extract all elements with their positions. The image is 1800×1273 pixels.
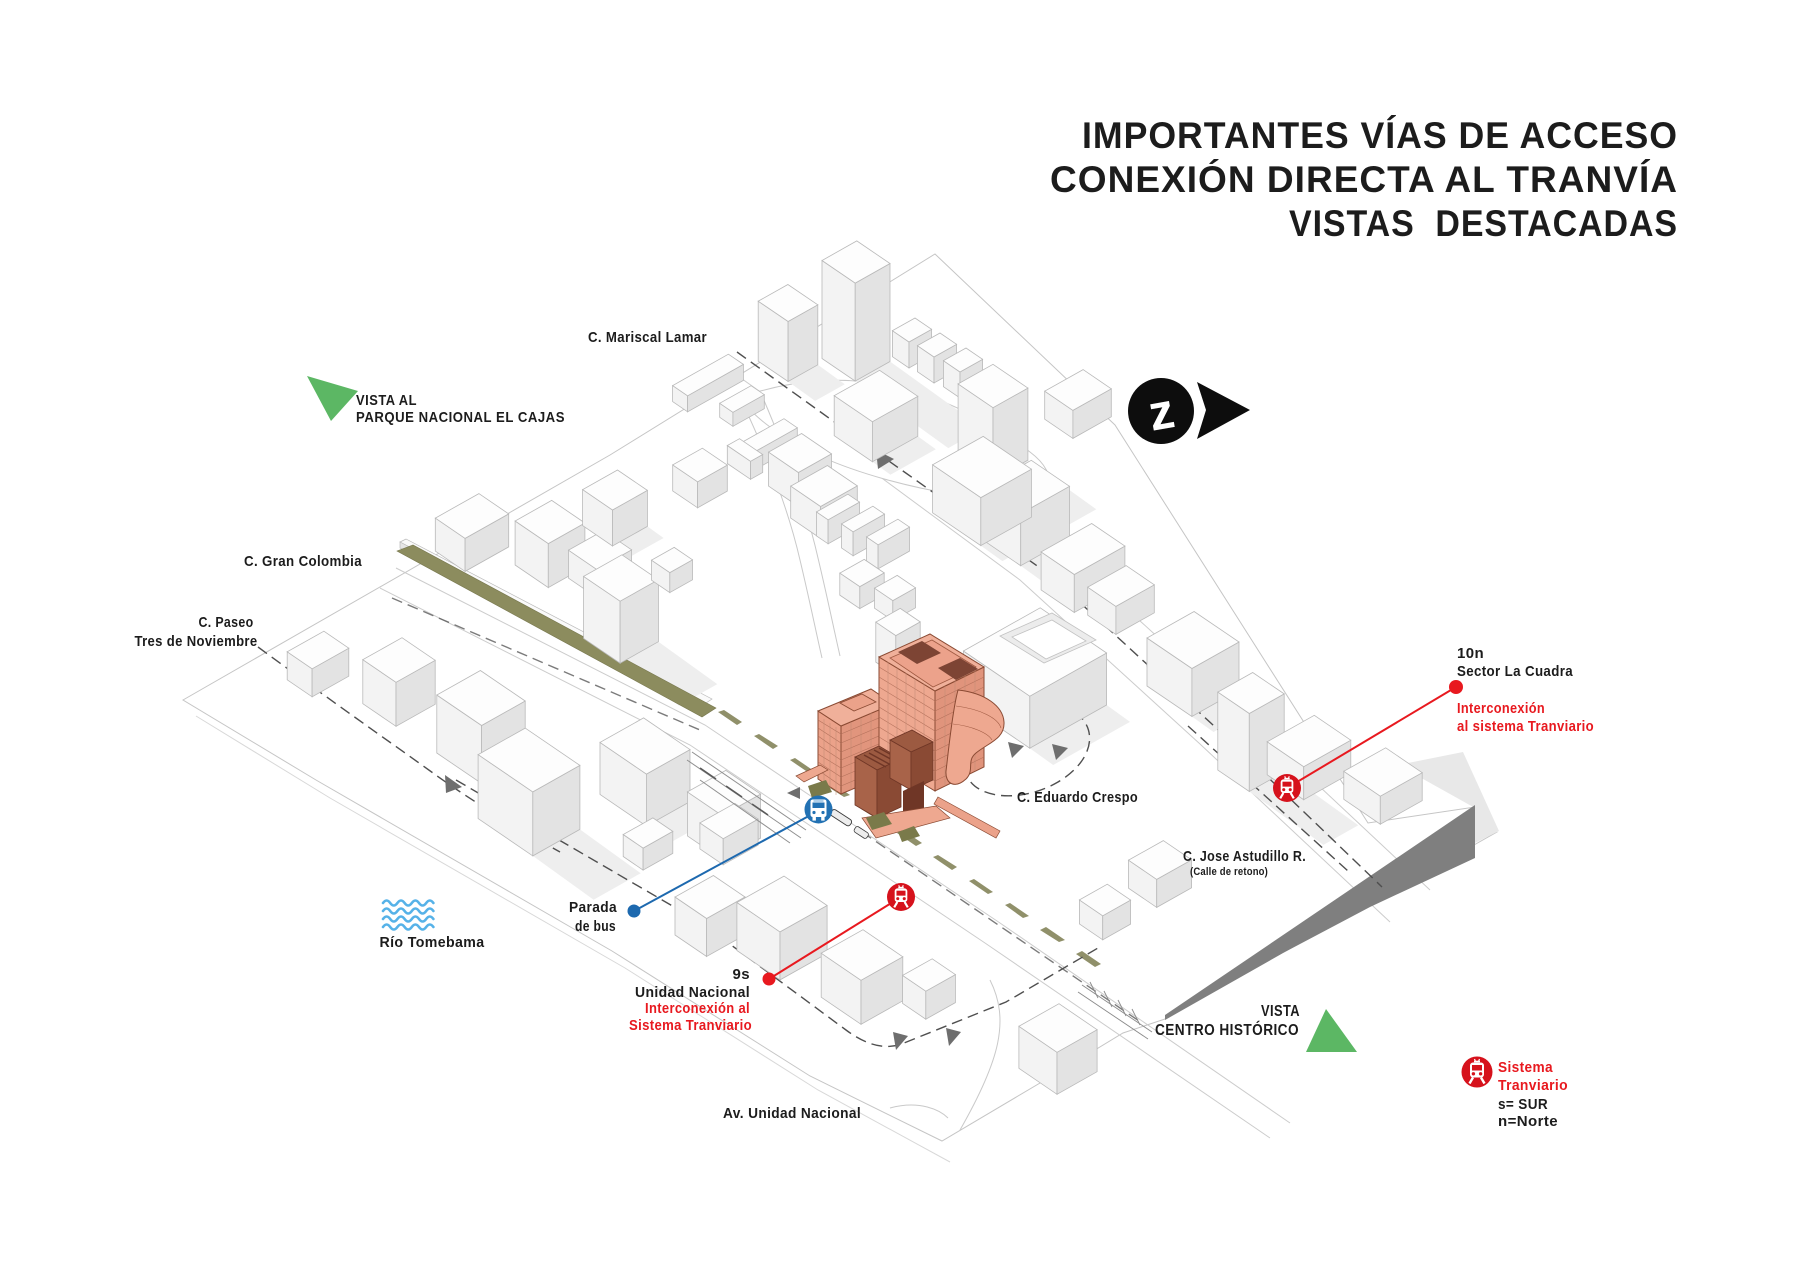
svg-text:VISTA: VISTA	[1261, 1003, 1300, 1020]
svg-text:Interconexión: Interconexión	[1457, 700, 1545, 717]
svg-text:C. Jose Astudillo R.: C. Jose Astudillo R.	[1183, 848, 1306, 865]
svg-text:10n: 10n	[1457, 645, 1484, 662]
svg-text:9s: 9s	[733, 966, 751, 983]
svg-text:Sector La Cuadra: Sector La Cuadra	[1457, 663, 1573, 680]
svg-text:(Calle de retono): (Calle de retono)	[1190, 866, 1268, 878]
svg-text:Av. Unidad Nacional: Av. Unidad Nacional	[723, 1105, 861, 1122]
svg-text:Río Tomebama: Río Tomebama	[380, 934, 485, 951]
svg-text:CENTRO HISTÓRICO: CENTRO HISTÓRICO	[1155, 1020, 1299, 1039]
svg-text:PARQUE NACIONAL EL CAJAS: PARQUE NACIONAL EL CAJAS	[356, 409, 565, 426]
svg-text:s= SUR: s= SUR	[1498, 1096, 1548, 1113]
svg-text:Tranviario: Tranviario	[1498, 1077, 1568, 1094]
svg-text:Parada: Parada	[569, 899, 617, 916]
svg-text:IMPORTANTES VÍAS DE ACCESO: IMPORTANTES VÍAS DE ACCESO	[1082, 115, 1678, 156]
svg-text:Unidad Nacional: Unidad Nacional	[635, 984, 750, 1001]
svg-text:n=Norte: n=Norte	[1498, 1113, 1558, 1130]
svg-text:de bus: de bus	[575, 918, 616, 935]
svg-text:Interconexión al: Interconexión al	[645, 1000, 750, 1017]
svg-text:C. Mariscal Lamar: C. Mariscal Lamar	[588, 329, 707, 346]
svg-text:Sistema Tranviario: Sistema Tranviario	[629, 1017, 752, 1034]
svg-text:VISTA AL: VISTA AL	[356, 392, 417, 409]
svg-text:C. Eduardo Crespo: C. Eduardo Crespo	[1017, 789, 1138, 806]
svg-text:C. Paseo: C. Paseo	[199, 614, 254, 631]
svg-text:al sistema Tranviario: al sistema Tranviario	[1457, 718, 1594, 735]
svg-text:Sistema: Sistema	[1498, 1059, 1553, 1076]
svg-text:C. Gran Colombia: C. Gran Colombia	[244, 553, 362, 570]
svg-text:CONEXIÓN DIRECTA AL TRANVÍA: CONEXIÓN DIRECTA AL TRANVÍA	[1050, 158, 1678, 200]
svg-text:Tres de Noviembre: Tres de Noviembre	[135, 633, 258, 650]
svg-text:VISTAS DESTACADAS: VISTAS DESTACADAS	[1289, 203, 1678, 244]
